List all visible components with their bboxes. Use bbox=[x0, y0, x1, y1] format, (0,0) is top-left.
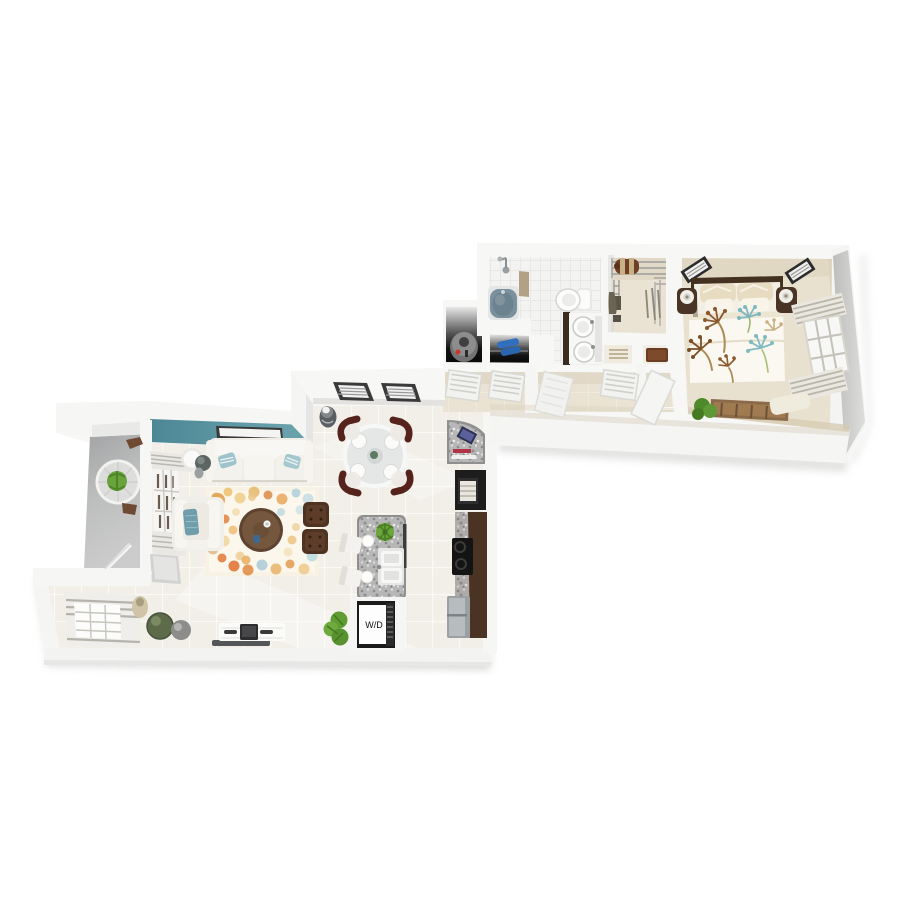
svg-text:W/D: W/D bbox=[365, 620, 383, 630]
